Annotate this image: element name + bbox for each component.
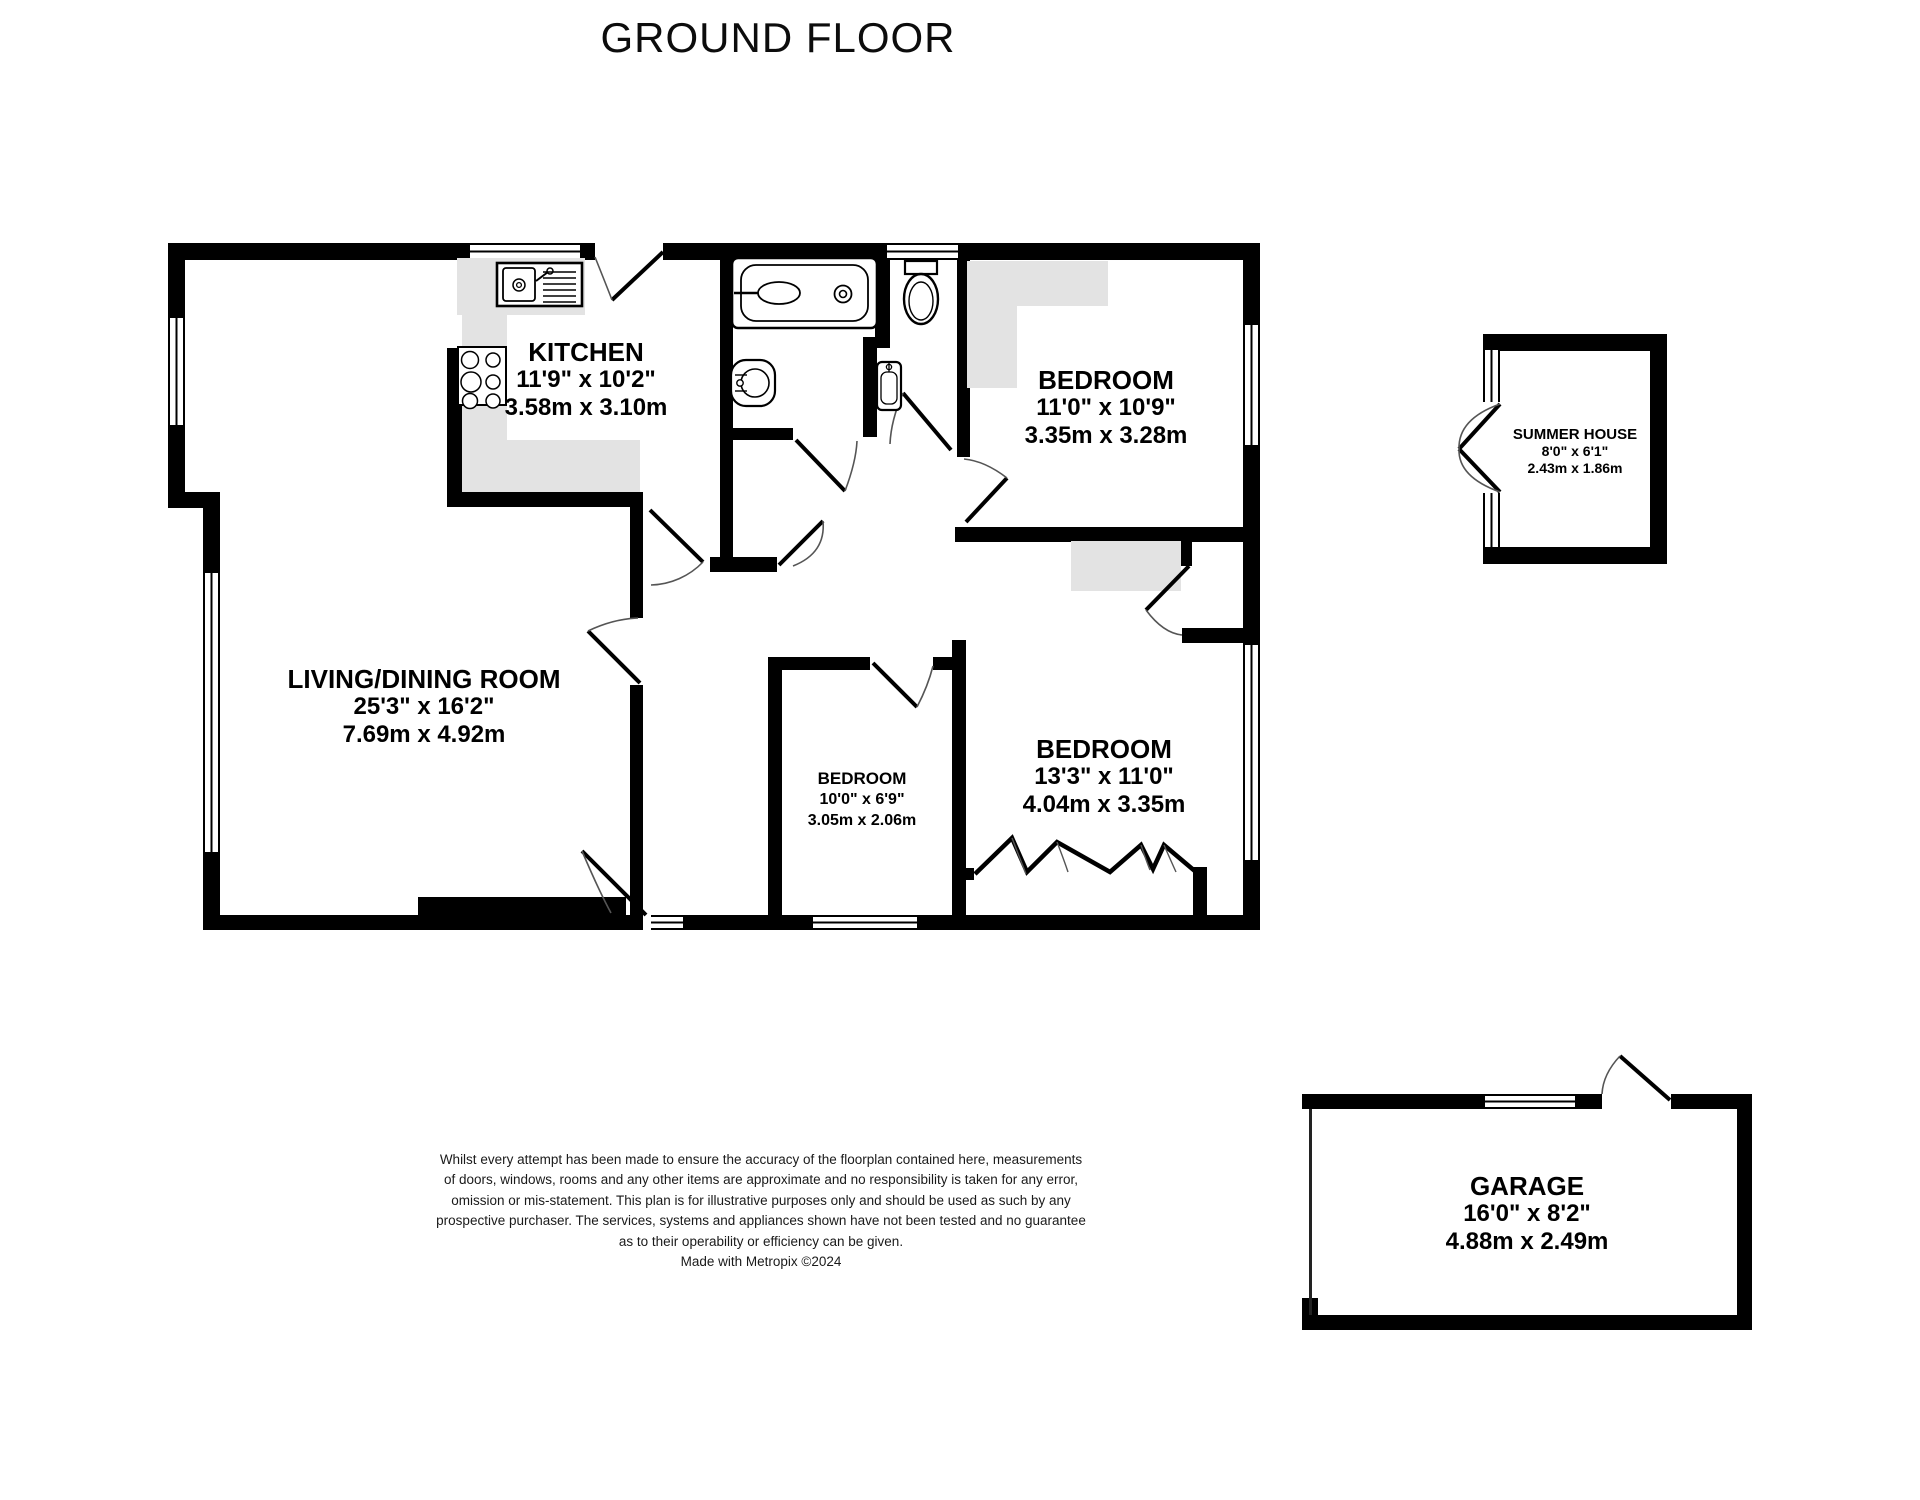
bedroom1-door-icon <box>966 478 1007 522</box>
room-name: BEDROOM <box>954 735 1254 763</box>
room-size-metric: 3.35m x 3.28m <box>956 422 1256 450</box>
wc-door-icon <box>903 393 951 450</box>
disclaimer-line: prospective purchaser. The services, sys… <box>411 1211 1111 1231</box>
bathroom-door-icon <box>796 440 845 491</box>
room-size-metric: 7.69m x 4.92m <box>254 721 594 749</box>
disclaimer-line: omission or mis-statement. This plan is … <box>411 1191 1111 1211</box>
room-size-metric: 4.04m x 3.35m <box>954 791 1254 819</box>
room-size-imperial: 16'0" x 8'2" <box>1377 1200 1677 1228</box>
room-size-metric: 3.58m x 3.10m <box>436 394 736 422</box>
room-name: BEDROOM <box>956 366 1256 394</box>
room-size-imperial: 11'0" x 10'9" <box>956 394 1256 422</box>
sink-icon <box>497 263 582 306</box>
basin-icon <box>731 360 775 406</box>
room-label-kitchen: KITCHEN 11'9" x 10'2" 3.58m x 3.10m <box>436 338 736 422</box>
disclaimer-credit: Made with Metropix ©2024 <box>411 1252 1111 1272</box>
room-size-metric: 3.05m x 2.06m <box>762 810 962 831</box>
disclaimer-line: Whilst every attempt has been made to en… <box>411 1150 1111 1170</box>
room-label-summer-house: SUMMER HOUSE 8'0" x 6'1" 2.43m x 1.86m <box>1480 426 1670 477</box>
bedroom2-door-icon <box>1146 566 1189 610</box>
bathtub-icon <box>732 258 877 328</box>
room-size-metric: 4.88m x 2.49m <box>1377 1228 1677 1256</box>
floorplan-canvas: GROUND FLOOR <box>0 0 1920 1500</box>
room-label-bedroom-2: BEDROOM 13'3" x 11'0" 4.04m x 3.35m <box>954 735 1254 819</box>
disclaimer: Whilst every attempt has been made to en… <box>411 1150 1111 1272</box>
room-label-living-dining: LIVING/DINING ROOM 25'3" x 16'2" 7.69m x… <box>254 665 594 749</box>
kitchen-door-icon <box>650 510 703 562</box>
cupboard-door-icon <box>779 521 823 565</box>
hand-basin-icon <box>877 362 901 410</box>
room-size-metric: 2.43m x 1.86m <box>1480 460 1670 477</box>
room-size-imperial: 13'3" x 11'0" <box>954 763 1254 791</box>
room-label-garage: GARAGE 16'0" x 8'2" 4.88m x 2.49m <box>1377 1172 1677 1256</box>
room-label-bedroom-3: BEDROOM 10'0" x 6'9" 3.05m x 2.06m <box>762 768 962 831</box>
room-label-bedroom-1: BEDROOM 11'0" x 10'9" 3.35m x 3.28m <box>956 366 1256 450</box>
room-name: BEDROOM <box>762 768 962 789</box>
living-room-door-icon <box>588 631 640 683</box>
toilet-icon <box>904 261 938 324</box>
room-size-imperial: 25'3" x 16'2" <box>254 693 594 721</box>
room-name: GARAGE <box>1377 1172 1677 1200</box>
room-name: LIVING/DINING ROOM <box>254 665 594 693</box>
disclaimer-line: of doors, windows, rooms and any other i… <box>411 1170 1111 1190</box>
bedroom3-door-icon <box>873 663 917 707</box>
garage-door-icon <box>1620 1056 1670 1100</box>
room-size-imperial: 8'0" x 6'1" <box>1480 443 1670 460</box>
room-size-imperial: 10'0" x 6'9" <box>762 789 962 810</box>
room-name: KITCHEN <box>436 338 736 366</box>
folding-doors-icon <box>975 838 1196 874</box>
rear-hall-door-icon <box>582 851 646 915</box>
disclaimer-line: as to their operability or efficiency ca… <box>411 1232 1111 1252</box>
room-name: SUMMER HOUSE <box>1480 426 1670 443</box>
back-door-icon <box>612 252 663 300</box>
room-size-imperial: 11'9" x 10'2" <box>436 366 736 394</box>
